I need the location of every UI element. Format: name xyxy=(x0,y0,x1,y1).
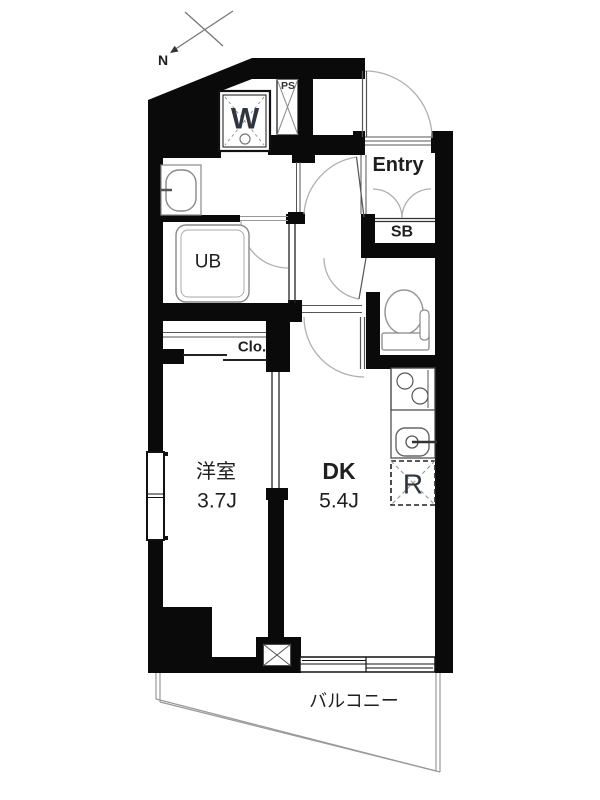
shoebox-door-arc xyxy=(373,189,402,218)
kitchen xyxy=(391,368,437,458)
bathtub: UB xyxy=(176,225,249,302)
toilet-bowl xyxy=(385,290,423,334)
ub-label: UB xyxy=(195,252,221,273)
walls xyxy=(148,58,453,673)
wall-toilet-bottom xyxy=(366,355,453,369)
north-arrow-line xyxy=(174,11,233,50)
closet-label: Clo. xyxy=(238,339,266,356)
west-window-cap xyxy=(163,536,168,540)
pipe-space: PS xyxy=(277,79,298,135)
wall-ub-right-top-cap xyxy=(286,214,298,224)
washer-label: W xyxy=(231,103,260,136)
west-room-window xyxy=(147,452,164,540)
toilet-door-leaf xyxy=(359,258,366,299)
north-label: N xyxy=(158,52,168,68)
wall-entrance-left-jamb xyxy=(353,131,365,151)
wall-hatch-box xyxy=(263,644,291,666)
washing-machine: W xyxy=(219,91,270,151)
wall-left-exterior xyxy=(148,158,163,673)
toilet xyxy=(382,290,429,350)
wall-bottom-left-chunk xyxy=(148,607,212,673)
shoebox-label: SB xyxy=(391,224,413,241)
wall-corridor-bottom-cap xyxy=(288,300,302,322)
toilet-door-arc xyxy=(324,258,359,299)
western-room-size: 3.7J xyxy=(197,490,237,513)
refrigerator-space: R xyxy=(391,461,435,505)
west-window-cap xyxy=(163,452,168,456)
wall-partition-cap xyxy=(266,488,288,500)
toilet-armrest xyxy=(420,310,429,340)
wall-ub-top xyxy=(163,215,240,222)
ps-label: PS xyxy=(281,80,295,92)
wall-partition-lower xyxy=(268,500,284,640)
wall-closet-right xyxy=(266,308,290,372)
wall-right-exterior xyxy=(435,131,453,673)
entrance-door-arc xyxy=(365,71,432,138)
balcony: バルコニー xyxy=(156,673,440,772)
north-arrowhead-icon xyxy=(170,46,179,53)
wall-sb-bottom xyxy=(366,243,435,258)
entry-hall-door-leaf xyxy=(357,157,365,217)
shoebox-door-arc xyxy=(402,189,431,218)
floor-plan-page: N xyxy=(0,0,600,800)
dk-label: DK xyxy=(322,458,356,484)
entry-label: Entry xyxy=(372,154,424,176)
western-room-label: 洋室 xyxy=(196,460,236,483)
wall-powder-door-top-cap xyxy=(292,153,315,163)
north-arrow: N xyxy=(158,11,233,68)
washbasin xyxy=(160,165,201,215)
wall-toilet-left xyxy=(366,292,380,357)
balcony-label: バルコニー xyxy=(309,691,399,711)
balcony-rail xyxy=(160,702,436,771)
wall-closet-left-stub xyxy=(161,349,184,364)
wall-bottom-band xyxy=(212,657,258,673)
washer-drain-icon xyxy=(240,134,250,144)
fridge-label: R xyxy=(403,469,423,500)
dk-door-arc xyxy=(304,317,364,377)
entry-hall-door-arc xyxy=(304,157,357,214)
dk-size: 5.4J xyxy=(319,490,359,513)
wall-corridor-top xyxy=(268,135,365,155)
north-cross-line xyxy=(185,12,223,46)
floor-plan-svg: N xyxy=(0,0,600,800)
